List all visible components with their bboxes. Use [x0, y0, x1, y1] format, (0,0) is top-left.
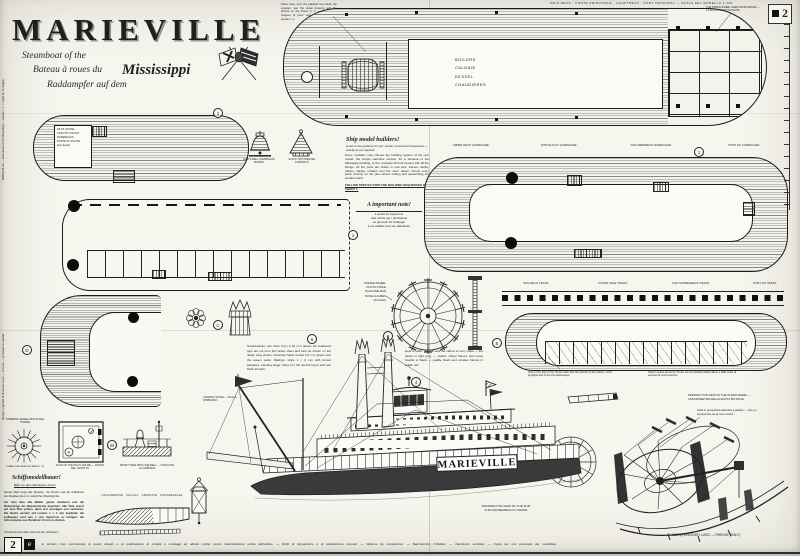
stern-note-1: PERSPECTIVE VIEW OF THE STERN WHEEL — AS… [688, 394, 764, 401]
boiler-deck-plan [62, 199, 350, 291]
boiler-casing-labels: BOILERS CALDAIE KESSEL CHAUDIÈRES [455, 56, 486, 90]
smokestack-opening [67, 259, 79, 271]
deck-fitting [345, 13, 348, 16]
river-name: Mississippi [122, 62, 190, 79]
deck-fitting [345, 115, 348, 118]
smokestack-opening [506, 172, 518, 184]
marker-circle-flower: C [213, 320, 223, 330]
ships-bell-icon [246, 129, 274, 157]
bulwark-dashed-line [71, 204, 341, 206]
stern-flag-icon [490, 389, 503, 396]
important-note-body: it works for beginners vale anche per i … [350, 213, 428, 229]
steamboat-perspective-drawing: MARIEVILLE [205, 332, 600, 525]
plan-marker-letter: A [68, 450, 71, 455]
subtitle-french: Bateau à roues du [33, 65, 102, 75]
german-subheading: Bitte vor dem Baubeginn lesen! [14, 484, 56, 488]
pilot-house-labels: PILOT HOUSE CASOTTO PILOTA RUDERHAUS POS… [57, 128, 80, 148]
hurricane-deck-plan [424, 157, 788, 272]
modelers-body: Every modeller may choose the building s… [345, 154, 429, 181]
derrick-post-plan [319, 46, 320, 98]
plan-sheet: MARIEVILLE — steamboat of the Mississipp… [0, 0, 800, 556]
smokestack-opening [505, 237, 517, 249]
hurricane-label-en: UPPER DECK 'HURRICANE' [436, 144, 506, 148]
texas-label-it: PONTE SOLE 'TEXAS' [584, 282, 642, 286]
pilot-house-front-detail [121, 419, 173, 463]
stairs-detail [743, 202, 755, 216]
hull-profile-detail [92, 499, 192, 537]
paddle-slats [624, 417, 734, 461]
deck-fitting [495, 11, 498, 14]
german-paragraph-2: Vor dem Bau alle Blätter genau studieren… [4, 501, 84, 523]
deck-fitting [415, 118, 418, 121]
edge-note-bottom: disegno originale di Vincenzo Lusci — Fi… [2, 270, 6, 420]
texas-caption-right: Vista in pianta del ponte 'Texas' con la… [648, 371, 736, 378]
stairs-detail [574, 249, 602, 258]
scale-bar [784, 24, 790, 210]
hurricane-label-fr: PONT DU 'HURRICANE' [718, 144, 770, 148]
modelers-emphasis: FOLLOW STEP BY STEP THE BUILDING SEQUENC… [345, 184, 429, 192]
stern-wheel-note: THE STERN WHEEL SEEN FROM ABOVE — LA RUO… [706, 6, 762, 13]
boiler-casing-outline: BOILERS CALDAIE KESSEL CHAUDIÈRES [408, 39, 663, 109]
modelers-heading: Ship model builders! [346, 136, 399, 144]
wheel-grid-bearing [736, 26, 740, 30]
texas-deck-plan-left: PILOT HOUSE CASOTTO PILOTA RUDERHAUS POS… [33, 115, 249, 181]
corner-sheet-number: 2 [768, 4, 792, 24]
texas-label-de: DAS SONNENDECK 'TEXAS' [660, 282, 722, 286]
stairs-detail [152, 270, 166, 279]
steering-wheel-starburst-icon [6, 428, 42, 464]
marker-circle-m: M [107, 440, 117, 450]
capstan-windlass-icon [340, 56, 388, 94]
german-paragraph-1: Dieses Blatt zeigt alle Spanten, die Dec… [4, 491, 84, 498]
stern-wheel-plan-grid [668, 29, 762, 117]
companionway-steps [113, 170, 135, 183]
wheel-grid-bearing [676, 104, 680, 108]
rosette-detail-icon [185, 307, 207, 329]
stairs-detail [92, 126, 107, 137]
marker-circle-1: 1 [213, 108, 223, 118]
bow-flag-icon [235, 376, 253, 387]
marker-circle-hurricane: 1 [694, 147, 704, 157]
important-note-heading: A important note! [356, 202, 422, 212]
wheel-spokes [618, 441, 698, 509]
corner-black-square-icon [772, 10, 779, 17]
bow-deck-plan [40, 295, 161, 407]
smokestack-opening [127, 376, 138, 387]
paddle-wheel-label: PADDLE WHEEL RUOTA A PALE SCHAUFELRAD RO… [338, 281, 386, 302]
subtitle-english: Steamboat of the [22, 51, 86, 61]
stern-wheel-perspective-drawing [598, 403, 794, 537]
bow-stairs [47, 340, 75, 366]
wheel-grid-bearing [736, 104, 740, 108]
copyright-line: © 1969 by VINCENZO LUSCI — FIRENZE (ITAL… [668, 533, 778, 537]
pilot-house-label-box: PILOT HOUSE CASOTTO PILOTA RUDERHAUS POS… [54, 125, 92, 168]
perspective-caption: PERSPECTIVE VIEW OF THE SHIP VUE D'ENSEM… [462, 505, 550, 513]
smokestack-opening [128, 312, 139, 323]
landing-stage-derrick [207, 374, 303, 472]
cone-label: STACK TOP CIMA DEL FUMAIOLO [283, 158, 321, 165]
wheel-grid-bearing [706, 104, 710, 108]
subtitle-german: Raddampfer auf dem [47, 80, 127, 90]
lantern-detail-icon [186, 477, 212, 525]
smokestacks [355, 337, 395, 429]
german-heading: Schiffsmodellbauer! [12, 475, 61, 483]
smokestack-opening [68, 200, 80, 212]
flags-crest-icon [216, 44, 262, 84]
marker-circle-d: D [22, 345, 32, 355]
hurricane-label-de: DAS OBERDECK 'HURRICANE' [614, 144, 688, 148]
stairs-detail [208, 272, 232, 281]
stack-top-cone-icon [287, 129, 315, 157]
marker-circle-center: 1 [348, 230, 358, 240]
bottom-edge-line [0, 552, 800, 554]
texas-label-en: SUN DECK 'TEXAS' [508, 282, 564, 286]
capstan-spindle-circle [301, 71, 313, 83]
edge-note-top: MARIEVILLE — steamboat of the Mississipp… [2, 30, 6, 180]
pilot-house-plan-caption: PLAN OF THE PILOT HOUSE — PIANTA DEL CAS… [55, 464, 105, 471]
side-elevation-strip [502, 291, 784, 306]
steering-wheel-label-bottom: (make it as shown on sheet n. 1) [3, 465, 47, 468]
deck-fitting [495, 118, 498, 121]
hurricane-label-it: PONTE ALTO 'HURRICANE' [528, 144, 590, 148]
pilot-house-plan-detail: A [58, 421, 104, 463]
legal-fine-print: È proibito l'uso commerciale di questi d… [42, 543, 772, 547]
pilot-house-front-caption: FRONT VIEW WITH THE BELL — VISTA CON LA … [119, 464, 175, 471]
bell-label: SHIP'S BELL CAMPANA DI BORDO [240, 158, 278, 165]
wheel-grid-bearing [676, 26, 680, 30]
sheet-number-box: 2 [4, 537, 22, 553]
steering-wheel-label-top: STEERING WHEEL RUOTA DEL TIMONE [3, 418, 47, 425]
bow-deck-opening [89, 312, 161, 392]
deck-fitting [575, 12, 578, 15]
sheet-letter-box: e [24, 539, 35, 550]
stairs-detail [653, 182, 669, 192]
stairs-detail [567, 175, 582, 186]
deck-fitting [575, 116, 578, 119]
page-title: MARIEVILLE [12, 12, 265, 48]
name-board: MARIEVILLE [437, 455, 517, 472]
hull-structure-labels: LONGHERONE · CHIGLIA · ORDINATE · PARAME… [92, 494, 192, 497]
corner-number-text: 2 [782, 6, 788, 22]
german-closing: Viel Erfolg beim Bau wünscht der Verfass… [4, 531, 80, 535]
deck-fitting [415, 11, 418, 14]
modelers-subheading: at last a new guidance for you: simple, … [346, 145, 428, 152]
hurricane-skylight-opening [469, 184, 753, 242]
wheel-grid-bearing [706, 26, 710, 30]
texas-label-fr: PONT DU 'TEXAS' [742, 282, 788, 286]
